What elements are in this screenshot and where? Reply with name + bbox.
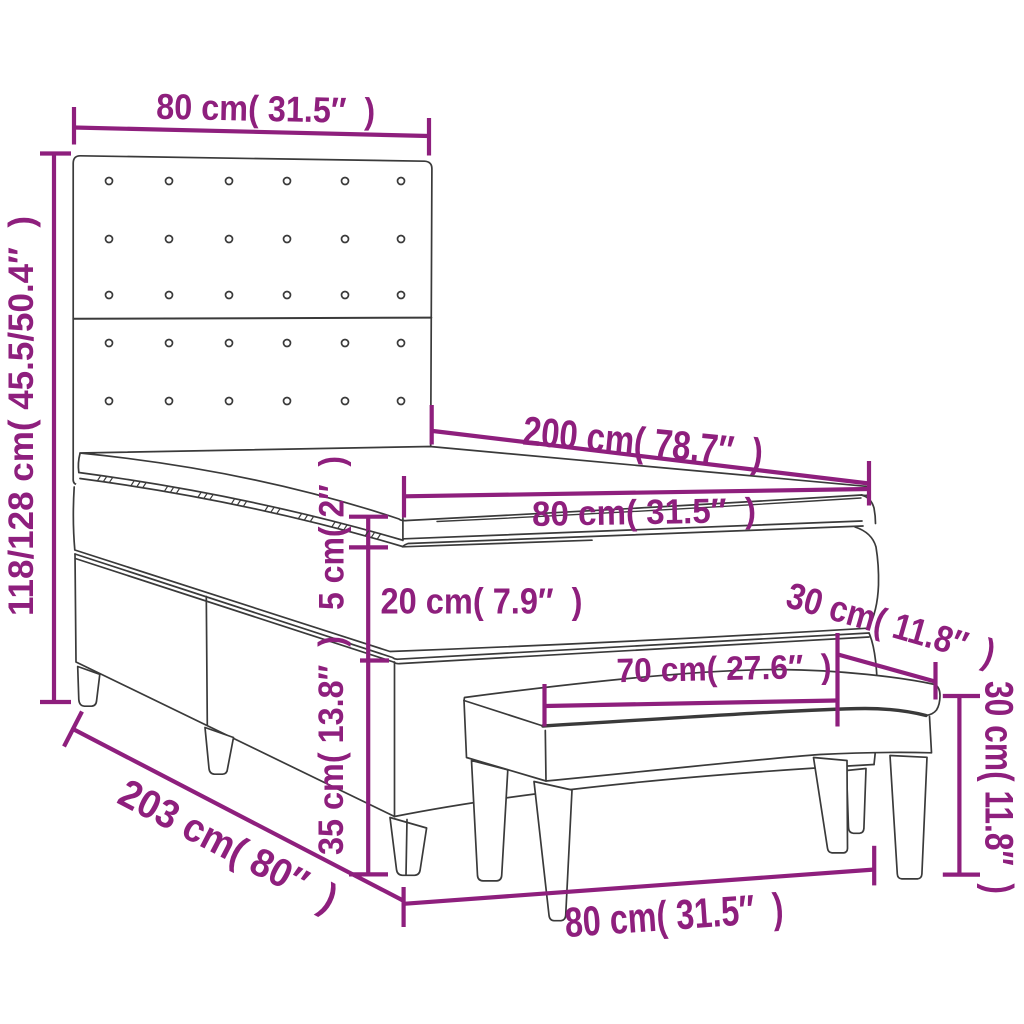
svg-text:80 cm( 31.5″ ): 80 cm( 31.5″ ) xyxy=(532,491,757,534)
svg-text:20 cm( 7.9″ ): 20 cm( 7.9″ ) xyxy=(381,581,583,622)
svg-text:70 cm( 27.6″ ): 70 cm( 27.6″ ) xyxy=(616,648,832,690)
svg-text:35 cm( 13.8″ ): 35 cm( 13.8″ ) xyxy=(312,636,351,855)
svg-text:80 cm( 31.5″ ): 80 cm( 31.5″ ) xyxy=(156,86,376,132)
svg-text:118/128 cm( 45.5/50.4″ ): 118/128 cm( 45.5/50.4″ ) xyxy=(2,216,41,616)
svg-text:5 cm( 2″ ): 5 cm( 2″ ) xyxy=(313,456,352,610)
svg-text:30 cm( 11.8″ ): 30 cm( 11.8″ ) xyxy=(977,681,1021,894)
